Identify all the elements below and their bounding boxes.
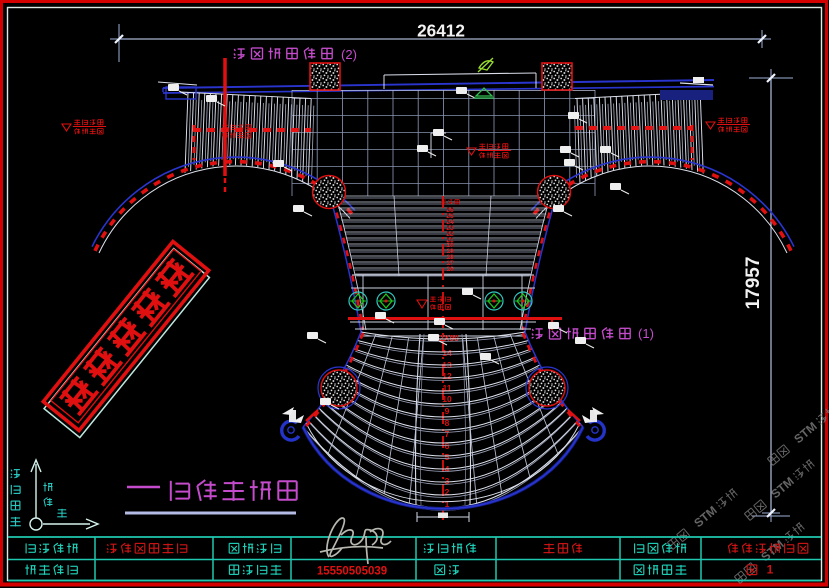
svg-text:12: 12 <box>442 371 452 381</box>
svg-text:9: 9 <box>445 406 450 416</box>
svg-text:10: 10 <box>442 394 452 404</box>
svg-text:2: 2 <box>445 487 450 497</box>
svg-text:16: 16 <box>446 266 454 273</box>
svg-text:5: 5 <box>445 452 450 462</box>
svg-text:17957: 17957 <box>743 257 764 310</box>
svg-text:(1): (1) <box>638 326 654 341</box>
svg-text:26412: 26412 <box>417 21 465 41</box>
svg-text:14: 14 <box>442 348 452 358</box>
svg-text:(2): (2) <box>341 47 357 62</box>
svg-text:15550505039: 15550505039 <box>317 566 387 578</box>
svg-text:7: 7 <box>445 429 450 439</box>
svg-text:1: 1 <box>767 563 774 577</box>
